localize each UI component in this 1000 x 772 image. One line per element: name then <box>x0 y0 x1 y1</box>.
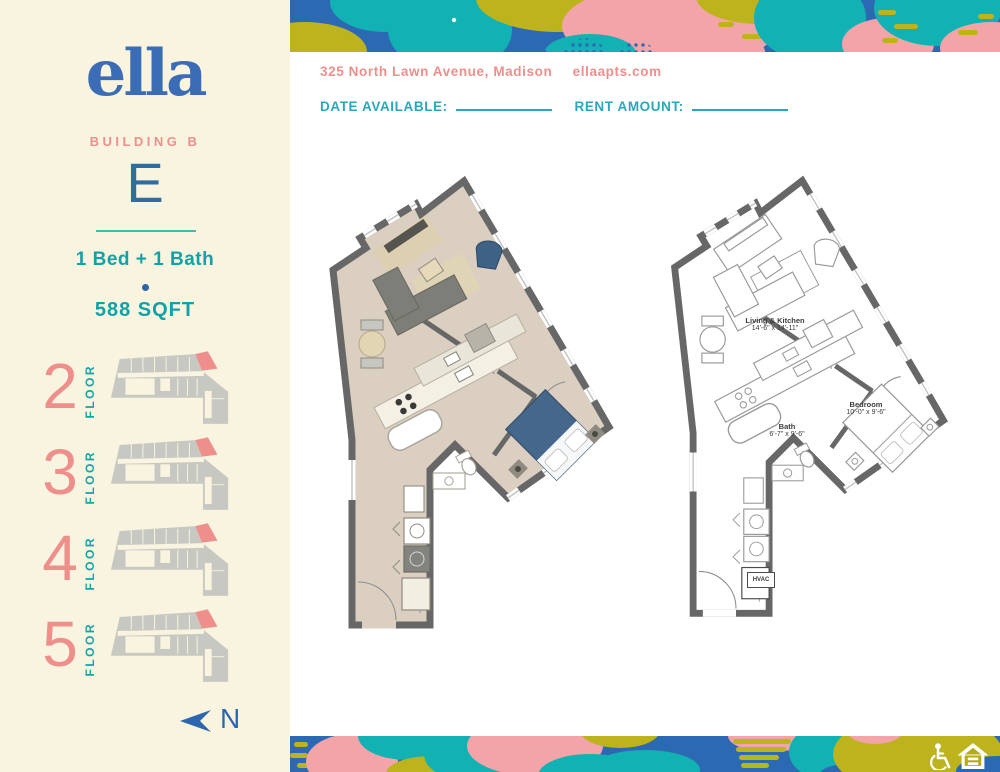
floor-number: 3 <box>38 430 82 514</box>
address-row: 325 North Lawn Avenue, Madison ellaapts.… <box>320 64 662 79</box>
wheelchair-accessibility-icon <box>928 742 952 770</box>
floor-number: 2 <box>38 344 82 428</box>
dot-separator <box>142 284 149 291</box>
rent-amount-blank <box>692 97 788 111</box>
date-available-label: DATE AVAILABLE: <box>320 99 448 114</box>
north-indicator: N <box>178 703 268 737</box>
bedroom-label: Bedroom 10'-0" x 9'-6" <box>806 400 926 418</box>
floor-word: FLOOR <box>83 536 97 591</box>
floor-4-keyplan <box>110 522 232 600</box>
floor-5-keyplan <box>110 608 232 686</box>
sqft-label: 588 SQFT <box>0 299 290 322</box>
equal-housing-icon <box>957 742 989 770</box>
dimensioned-floorplan <box>660 168 962 626</box>
north-label: N <box>220 703 240 735</box>
living-kitchen-label: Living & Kitchen 14'-6" x 14'-11" <box>715 316 835 334</box>
floorplan-flyer: ella BUILDING B E 1 Bed + 1 Bath 588 SQF… <box>0 0 1000 772</box>
floor-row-3: 3 FLOOR <box>30 434 262 518</box>
ella-logo: ella <box>0 36 290 111</box>
north-arrow-icon <box>178 709 212 733</box>
hvac-label: HVAC <box>747 572 775 588</box>
floor-row-5: 5 FLOOR <box>30 606 262 690</box>
floor-2-keyplan <box>110 350 232 428</box>
floor-word: FLOOR <box>83 622 97 677</box>
building-label: BUILDING B <box>0 134 290 149</box>
floor-number: 4 <box>38 516 82 600</box>
unit-letter: E <box>0 150 290 215</box>
rendered-floorplan <box>318 168 628 638</box>
floor-word: FLOOR <box>83 450 97 505</box>
top-banner-pattern <box>290 0 1000 52</box>
floor-number: 5 <box>38 602 82 686</box>
divider-line <box>96 230 196 232</box>
rent-amount-label: RENT AMOUNT: <box>574 99 683 114</box>
floor-word: FLOOR <box>83 364 97 419</box>
street-address: 325 North Lawn Avenue, Madison <box>320 64 552 79</box>
floor-3-keyplan <box>110 436 232 514</box>
bottom-banner-pattern <box>290 736 1000 772</box>
website-url: ellaapts.com <box>573 64 662 79</box>
floor-row-4: 4 FLOOR <box>30 520 262 604</box>
availability-row: DATE AVAILABLE: RENT AMOUNT: <box>320 97 792 114</box>
bed-bath-label: 1 Bed + 1 Bath <box>0 249 290 271</box>
date-available-blank <box>456 97 552 111</box>
sidebar: ella BUILDING B E 1 Bed + 1 Bath 588 SQF… <box>0 0 290 772</box>
floor-row-2: 2 FLOOR <box>30 348 262 432</box>
bath-label: Bath 6'-7" x 9'-6" <box>732 422 842 440</box>
